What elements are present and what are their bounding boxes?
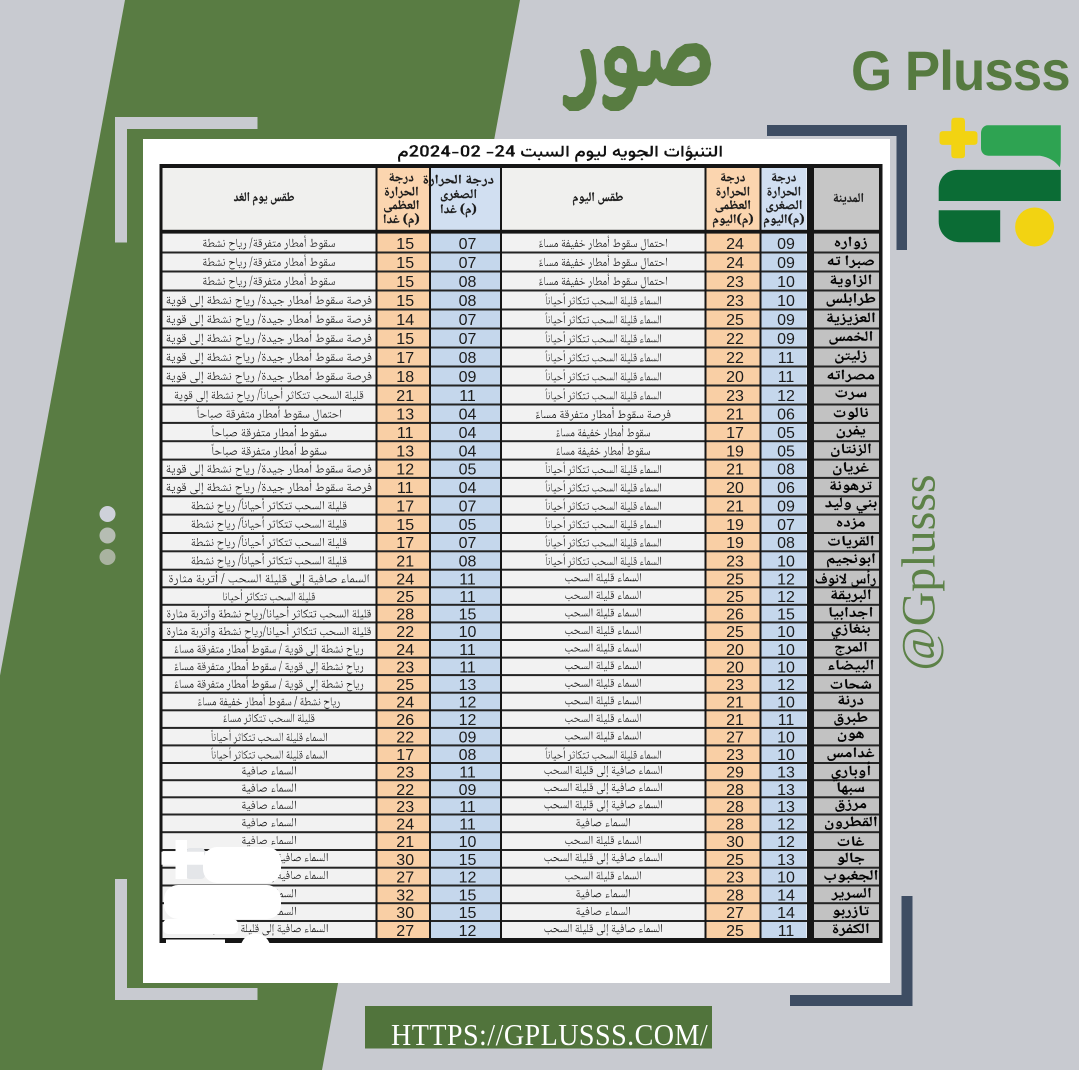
svg-text:10: 10 [777, 730, 795, 747]
svg-text:17: 17 [396, 350, 414, 367]
svg-text:28: 28 [726, 816, 744, 833]
svg-text:12: 12 [396, 462, 414, 479]
svg-text:21: 21 [726, 712, 744, 729]
svg-text:09: 09 [777, 236, 795, 253]
svg-text:28: 28 [396, 607, 414, 624]
svg-text:15: 15 [396, 274, 414, 291]
svg-text:25: 25 [726, 923, 744, 940]
svg-text:21: 21 [726, 499, 744, 516]
svg-text:11: 11 [459, 765, 476, 782]
svg-text:11: 11 [459, 589, 476, 606]
svg-text:09: 09 [777, 312, 795, 329]
svg-text:12: 12 [777, 388, 795, 405]
svg-text:12: 12 [459, 923, 477, 940]
svg-text:24: 24 [396, 572, 414, 589]
svg-text:13: 13 [396, 407, 414, 424]
svg-text:27: 27 [726, 905, 744, 922]
svg-text:11: 11 [397, 480, 414, 497]
svg-text:04: 04 [459, 425, 477, 442]
svg-text:08: 08 [459, 747, 477, 764]
svg-text:12: 12 [459, 870, 477, 887]
svg-text:28: 28 [726, 799, 744, 816]
svg-text:15: 15 [396, 517, 414, 534]
svg-text:11: 11 [459, 572, 476, 589]
svg-text:10: 10 [459, 624, 477, 641]
svg-text:24: 24 [726, 236, 744, 253]
svg-text:07: 07 [459, 255, 477, 272]
svg-text:11: 11 [459, 799, 476, 816]
svg-text:21: 21 [396, 834, 414, 851]
svg-text:23: 23 [726, 870, 744, 887]
svg-text:13: 13 [777, 782, 795, 799]
svg-text:10: 10 [777, 870, 795, 887]
svg-text:13: 13 [777, 799, 795, 816]
svg-text:22: 22 [396, 730, 414, 747]
svg-text:07: 07 [459, 535, 477, 552]
svg-text:17: 17 [396, 499, 414, 516]
svg-text:07: 07 [459, 331, 477, 348]
svg-text:11: 11 [778, 712, 795, 729]
svg-text:05: 05 [459, 517, 477, 534]
svg-text:04: 04 [459, 480, 477, 497]
svg-text:23: 23 [726, 293, 744, 310]
svg-text:10: 10 [777, 695, 795, 712]
svg-text:21: 21 [726, 462, 744, 479]
svg-text:22: 22 [396, 624, 414, 641]
svg-text:10: 10 [777, 659, 795, 676]
svg-text:07: 07 [459, 236, 477, 253]
svg-text:21: 21 [726, 407, 744, 424]
svg-text:08: 08 [459, 274, 477, 291]
svg-text:19: 19 [726, 517, 744, 534]
svg-text:14: 14 [777, 887, 795, 904]
svg-text:11: 11 [778, 350, 795, 367]
svg-text:13: 13 [777, 765, 795, 782]
svg-text:07: 07 [777, 517, 795, 534]
svg-text:27: 27 [726, 730, 744, 747]
svg-text:06: 06 [777, 407, 795, 424]
svg-text:10: 10 [777, 274, 795, 291]
svg-text:12: 12 [777, 589, 795, 606]
svg-text:22: 22 [726, 350, 744, 367]
svg-text:25: 25 [396, 589, 414, 606]
svg-text:05: 05 [459, 462, 477, 479]
svg-text:13: 13 [777, 852, 795, 869]
svg-text:17: 17 [396, 535, 414, 552]
svg-text:21: 21 [396, 554, 414, 571]
svg-text:08: 08 [777, 535, 795, 552]
svg-text:15: 15 [396, 236, 414, 253]
svg-text:20: 20 [726, 480, 744, 497]
svg-text:07: 07 [459, 312, 477, 329]
svg-text:08: 08 [459, 554, 477, 571]
svg-text:27: 27 [396, 870, 414, 887]
svg-text:11: 11 [778, 369, 795, 386]
svg-text:13: 13 [459, 677, 477, 694]
svg-text:09: 09 [777, 331, 795, 348]
svg-text:09: 09 [777, 499, 795, 516]
svg-text:14: 14 [396, 312, 414, 329]
svg-text:23: 23 [726, 677, 744, 694]
svg-text:13: 13 [396, 443, 414, 460]
svg-text:22: 22 [726, 331, 744, 348]
svg-text:23: 23 [396, 765, 414, 782]
svg-text:12: 12 [777, 572, 795, 589]
svg-text:08: 08 [459, 350, 477, 367]
svg-text:26: 26 [396, 712, 414, 729]
svg-text:23: 23 [726, 274, 744, 291]
svg-text:11: 11 [459, 642, 476, 659]
svg-text:21: 21 [726, 695, 744, 712]
svg-text:09: 09 [459, 782, 477, 799]
svg-text:15: 15 [459, 905, 477, 922]
svg-text:25: 25 [396, 677, 414, 694]
svg-text:24: 24 [396, 816, 414, 833]
svg-text:10: 10 [777, 293, 795, 310]
svg-text:30: 30 [396, 852, 414, 869]
svg-text:15: 15 [459, 887, 477, 904]
svg-text:22: 22 [396, 782, 414, 799]
svg-text:12: 12 [459, 695, 477, 712]
svg-text:25: 25 [726, 624, 744, 641]
svg-text:11: 11 [459, 659, 476, 676]
svg-text:25: 25 [726, 312, 744, 329]
svg-text:17: 17 [726, 425, 744, 442]
svg-text:25: 25 [726, 852, 744, 869]
svg-text:32: 32 [396, 887, 414, 904]
svg-text:07: 07 [459, 499, 477, 516]
svg-text:09: 09 [777, 255, 795, 272]
svg-text:12: 12 [459, 712, 477, 729]
svg-text:27: 27 [396, 923, 414, 940]
svg-text:15: 15 [459, 607, 477, 624]
svg-text:15: 15 [459, 852, 477, 869]
svg-text:12: 12 [777, 834, 795, 851]
svg-text:04: 04 [459, 407, 477, 424]
svg-text:24: 24 [396, 695, 414, 712]
svg-text:10: 10 [459, 834, 477, 851]
svg-text:25: 25 [726, 572, 744, 589]
svg-text:23: 23 [396, 659, 414, 676]
svg-text:20: 20 [726, 642, 744, 659]
svg-text:23: 23 [726, 388, 744, 405]
svg-text:25: 25 [726, 589, 744, 606]
svg-text:10: 10 [777, 642, 795, 659]
svg-text:11: 11 [778, 923, 795, 940]
svg-text:18: 18 [396, 369, 414, 386]
svg-text:20: 20 [726, 369, 744, 386]
svg-text:26: 26 [726, 607, 744, 624]
svg-text:24: 24 [396, 642, 414, 659]
svg-text:23: 23 [726, 554, 744, 571]
svg-text:15: 15 [396, 255, 414, 272]
svg-text:30: 30 [726, 834, 744, 851]
svg-text:14: 14 [777, 905, 795, 922]
svg-text:15: 15 [396, 293, 414, 310]
svg-text:12: 12 [777, 816, 795, 833]
svg-text:08: 08 [459, 293, 477, 310]
svg-text:15: 15 [396, 331, 414, 348]
svg-text:04: 04 [459, 443, 477, 460]
svg-text:11: 11 [397, 425, 414, 442]
svg-text:20: 20 [726, 659, 744, 676]
svg-text:09: 09 [459, 730, 477, 747]
svg-text:05: 05 [777, 443, 795, 460]
svg-text:11: 11 [459, 388, 476, 405]
svg-text:19: 19 [726, 535, 744, 552]
svg-text:05: 05 [777, 425, 795, 442]
svg-text:17: 17 [396, 747, 414, 764]
svg-text:15: 15 [777, 607, 795, 624]
svg-text:11: 11 [459, 816, 476, 833]
svg-text:28: 28 [726, 887, 744, 904]
svg-text:12: 12 [777, 677, 795, 694]
svg-text:10: 10 [777, 554, 795, 571]
svg-text:10: 10 [777, 624, 795, 641]
svg-text:23: 23 [396, 799, 414, 816]
svg-text:21: 21 [396, 388, 414, 405]
svg-text:30: 30 [396, 905, 414, 922]
svg-text:10: 10 [777, 747, 795, 764]
svg-text:24: 24 [726, 255, 744, 272]
svg-text:09: 09 [459, 369, 477, 386]
svg-text:29: 29 [726, 765, 744, 782]
svg-text:19: 19 [726, 443, 744, 460]
svg-text:08: 08 [777, 462, 795, 479]
svg-text:28: 28 [726, 782, 744, 799]
svg-text:06: 06 [777, 480, 795, 497]
svg-text:23: 23 [726, 747, 744, 764]
